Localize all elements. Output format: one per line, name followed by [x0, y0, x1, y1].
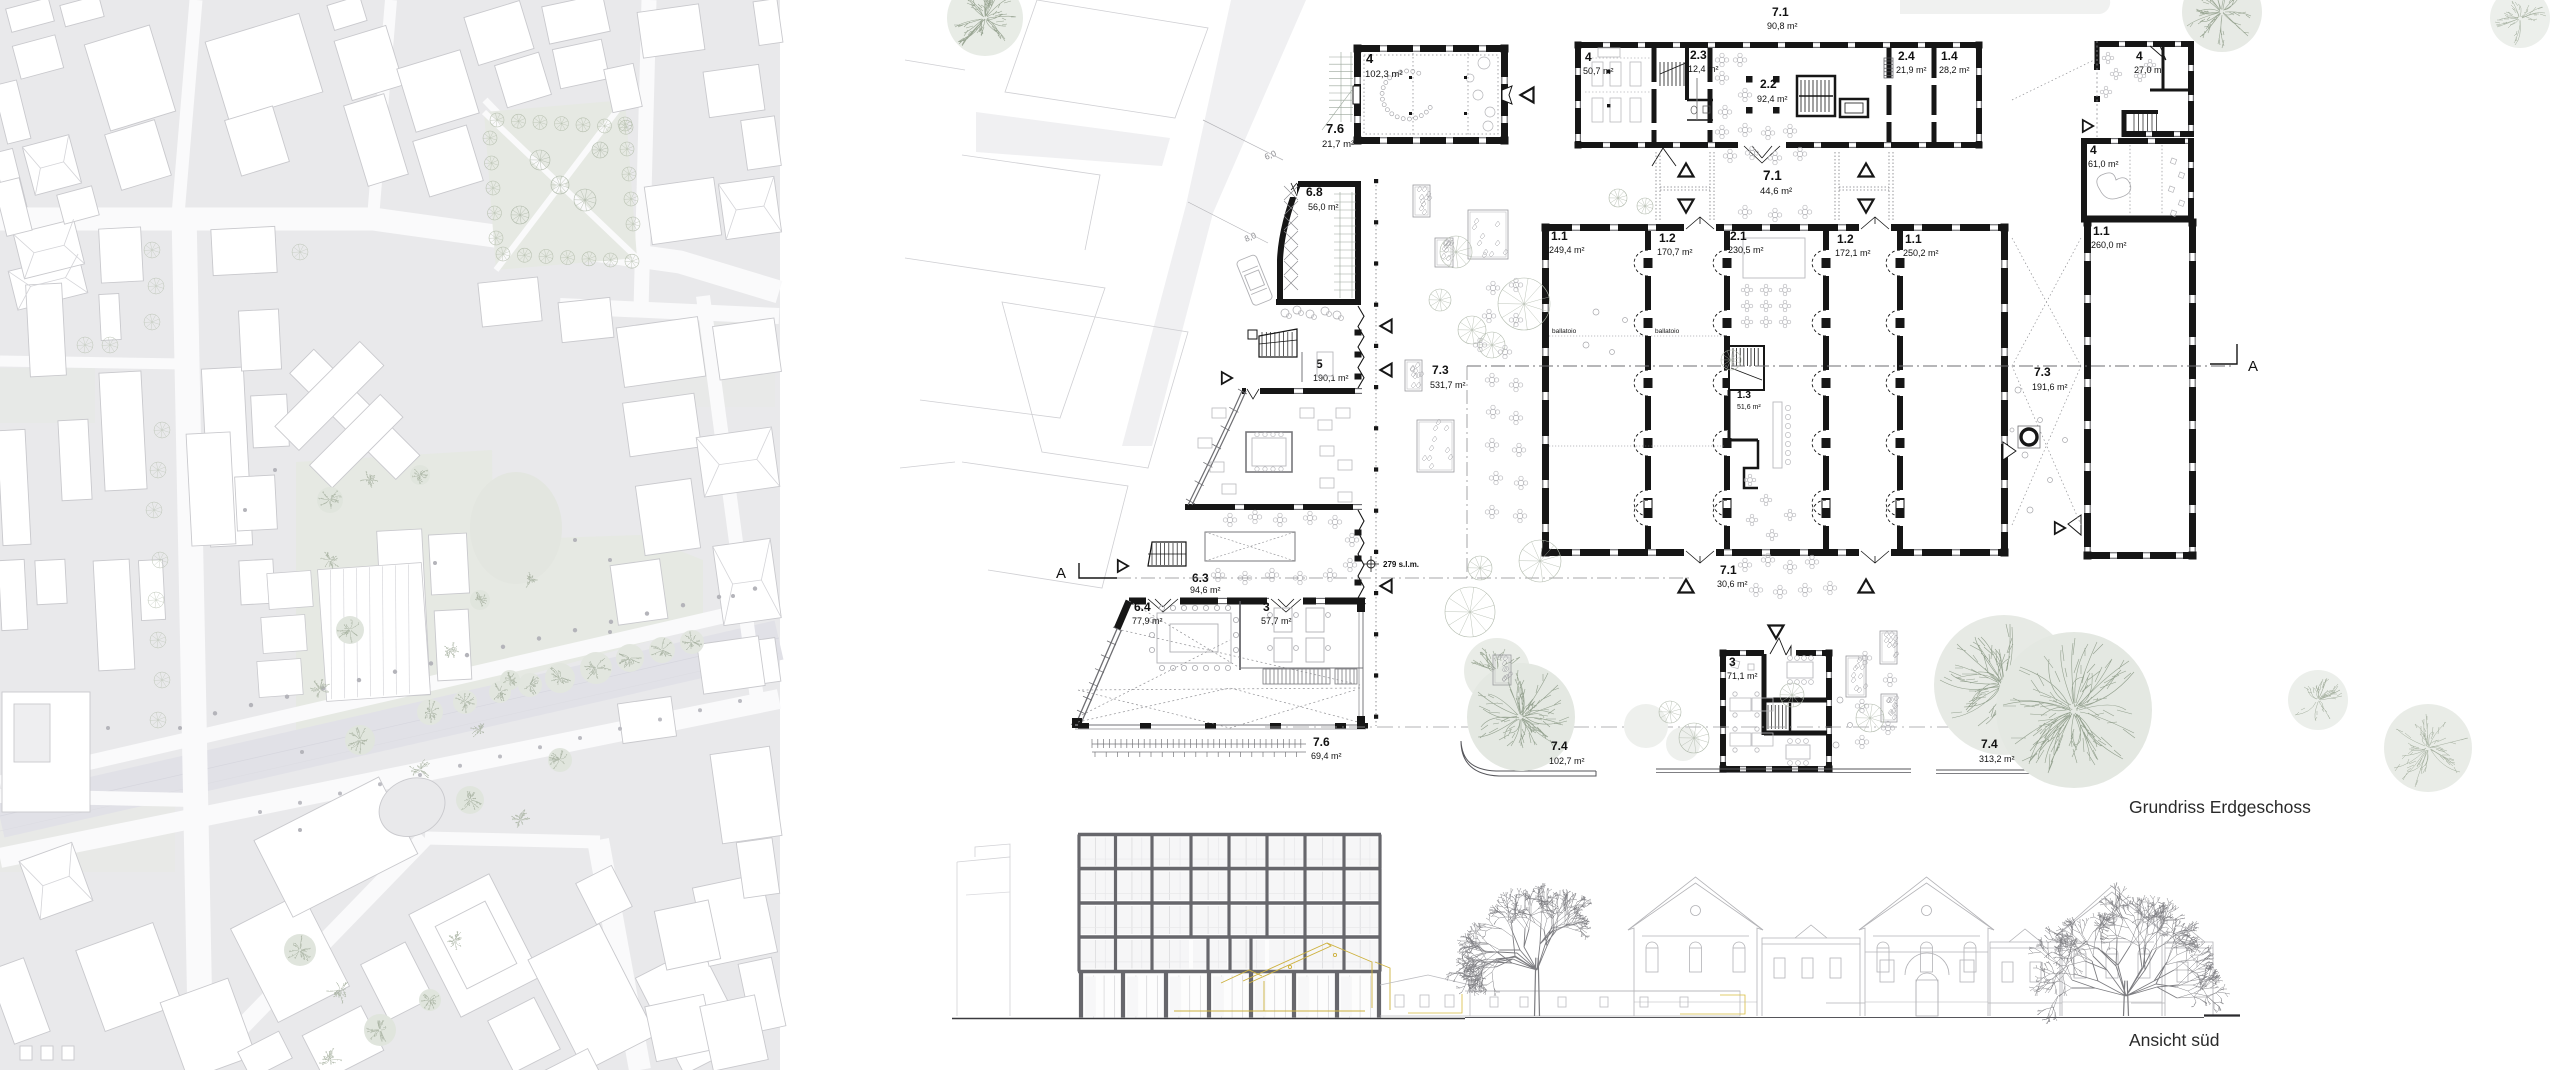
svg-text:71,1 m²: 71,1 m² [1727, 671, 1758, 681]
svg-text:230,5 m²: 230,5 m² [1728, 245, 1764, 255]
svg-text:28,2 m²: 28,2 m² [1939, 65, 1970, 75]
svg-text:92,4 m²: 92,4 m² [1757, 94, 1788, 104]
svg-text:ballatoio: ballatoio [1655, 328, 1680, 335]
svg-text:7.4: 7.4 [1551, 739, 1568, 753]
svg-text:3: 3 [1263, 600, 1270, 614]
svg-text:12,4 m²: 12,4 m² [1688, 64, 1719, 74]
svg-text:1.1: 1.1 [1551, 229, 1568, 243]
svg-text:57,7 m²: 57,7 m² [1261, 616, 1292, 626]
svg-text:313,2 m²: 313,2 m² [1979, 754, 2015, 764]
svg-text:172,1 m²: 172,1 m² [1835, 248, 1871, 258]
svg-text:2.4: 2.4 [1898, 49, 1915, 63]
svg-text:3: 3 [1729, 655, 1736, 669]
svg-text:260,0 m²: 260,0 m² [2091, 240, 2127, 250]
svg-text:102,3 m²: 102,3 m² [1365, 69, 1403, 80]
svg-text:1.2: 1.2 [1837, 232, 1854, 246]
svg-text:7.6: 7.6 [1313, 735, 1330, 749]
svg-text:61,0 m²: 61,0 m² [2088, 159, 2119, 169]
svg-text:2.3: 2.3 [1690, 48, 1707, 62]
svg-text:A: A [1056, 565, 1066, 582]
svg-text:1.3: 1.3 [1737, 390, 1751, 401]
svg-text:21,7 m²: 21,7 m² [1322, 139, 1354, 150]
svg-text:21,9 m²: 21,9 m² [1896, 65, 1927, 75]
svg-text:Ansicht süd: Ansicht süd [2129, 1030, 2219, 1050]
svg-text:90,8 m²: 90,8 m² [1767, 21, 1798, 31]
svg-text:7.4: 7.4 [1981, 737, 1998, 751]
svg-text:1.4: 1.4 [1941, 49, 1958, 63]
svg-text:4: 4 [2136, 49, 2143, 63]
svg-text:7.1: 7.1 [1772, 5, 1789, 19]
svg-text:6.4: 6.4 [1134, 600, 1151, 614]
svg-text:531,7 m²: 531,7 m² [1430, 380, 1466, 390]
svg-text:2.2: 2.2 [1760, 77, 1777, 91]
svg-text:250,2 m²: 250,2 m² [1903, 248, 1939, 258]
svg-text:4: 4 [2090, 143, 2097, 157]
svg-text:Grundriss Erdgeschoss: Grundriss Erdgeschoss [2129, 797, 2311, 817]
svg-text:27,0 m²: 27,0 m² [2134, 65, 2165, 75]
svg-text:7.6: 7.6 [1326, 121, 1344, 136]
svg-text:7.3: 7.3 [2034, 365, 2051, 379]
svg-text:279 s.l.m.: 279 s.l.m. [1383, 560, 1419, 569]
svg-text:56,0 m²: 56,0 m² [1308, 202, 1339, 212]
svg-text:7.1: 7.1 [1720, 563, 1737, 577]
svg-text:1.1: 1.1 [2093, 224, 2110, 238]
svg-text:51,6 m²: 51,6 m² [1737, 404, 1761, 411]
svg-text:50,7 m²: 50,7 m² [1583, 66, 1614, 76]
svg-text:191,6 m²: 191,6 m² [2032, 382, 2068, 392]
svg-text:249,4 m²: 249,4 m² [1549, 245, 1585, 255]
svg-text:190,1 m²: 190,1 m² [1313, 373, 1349, 383]
svg-text:7.3: 7.3 [1432, 363, 1449, 377]
svg-text:1.1: 1.1 [1905, 232, 1922, 246]
svg-text:2.1: 2.1 [1730, 229, 1747, 243]
svg-text:4: 4 [1366, 51, 1374, 66]
svg-text:30,6 m²: 30,6 m² [1717, 579, 1748, 589]
svg-text:170,7 m²: 170,7 m² [1657, 247, 1693, 257]
svg-text:6.8: 6.8 [1306, 185, 1323, 199]
svg-text:44,6 m²: 44,6 m² [1760, 186, 1792, 197]
svg-text:ballatoio: ballatoio [1552, 328, 1577, 335]
svg-text:1.2: 1.2 [1659, 231, 1676, 245]
svg-text:7.1: 7.1 [1763, 168, 1782, 183]
svg-text:94,6 m²: 94,6 m² [1190, 585, 1221, 595]
svg-text:4: 4 [1585, 50, 1592, 64]
svg-text:A: A [2248, 358, 2258, 375]
svg-text:69,4 m²: 69,4 m² [1311, 751, 1342, 761]
svg-text:102,7 m²: 102,7 m² [1549, 756, 1585, 766]
svg-text:77,9 m²: 77,9 m² [1132, 616, 1163, 626]
